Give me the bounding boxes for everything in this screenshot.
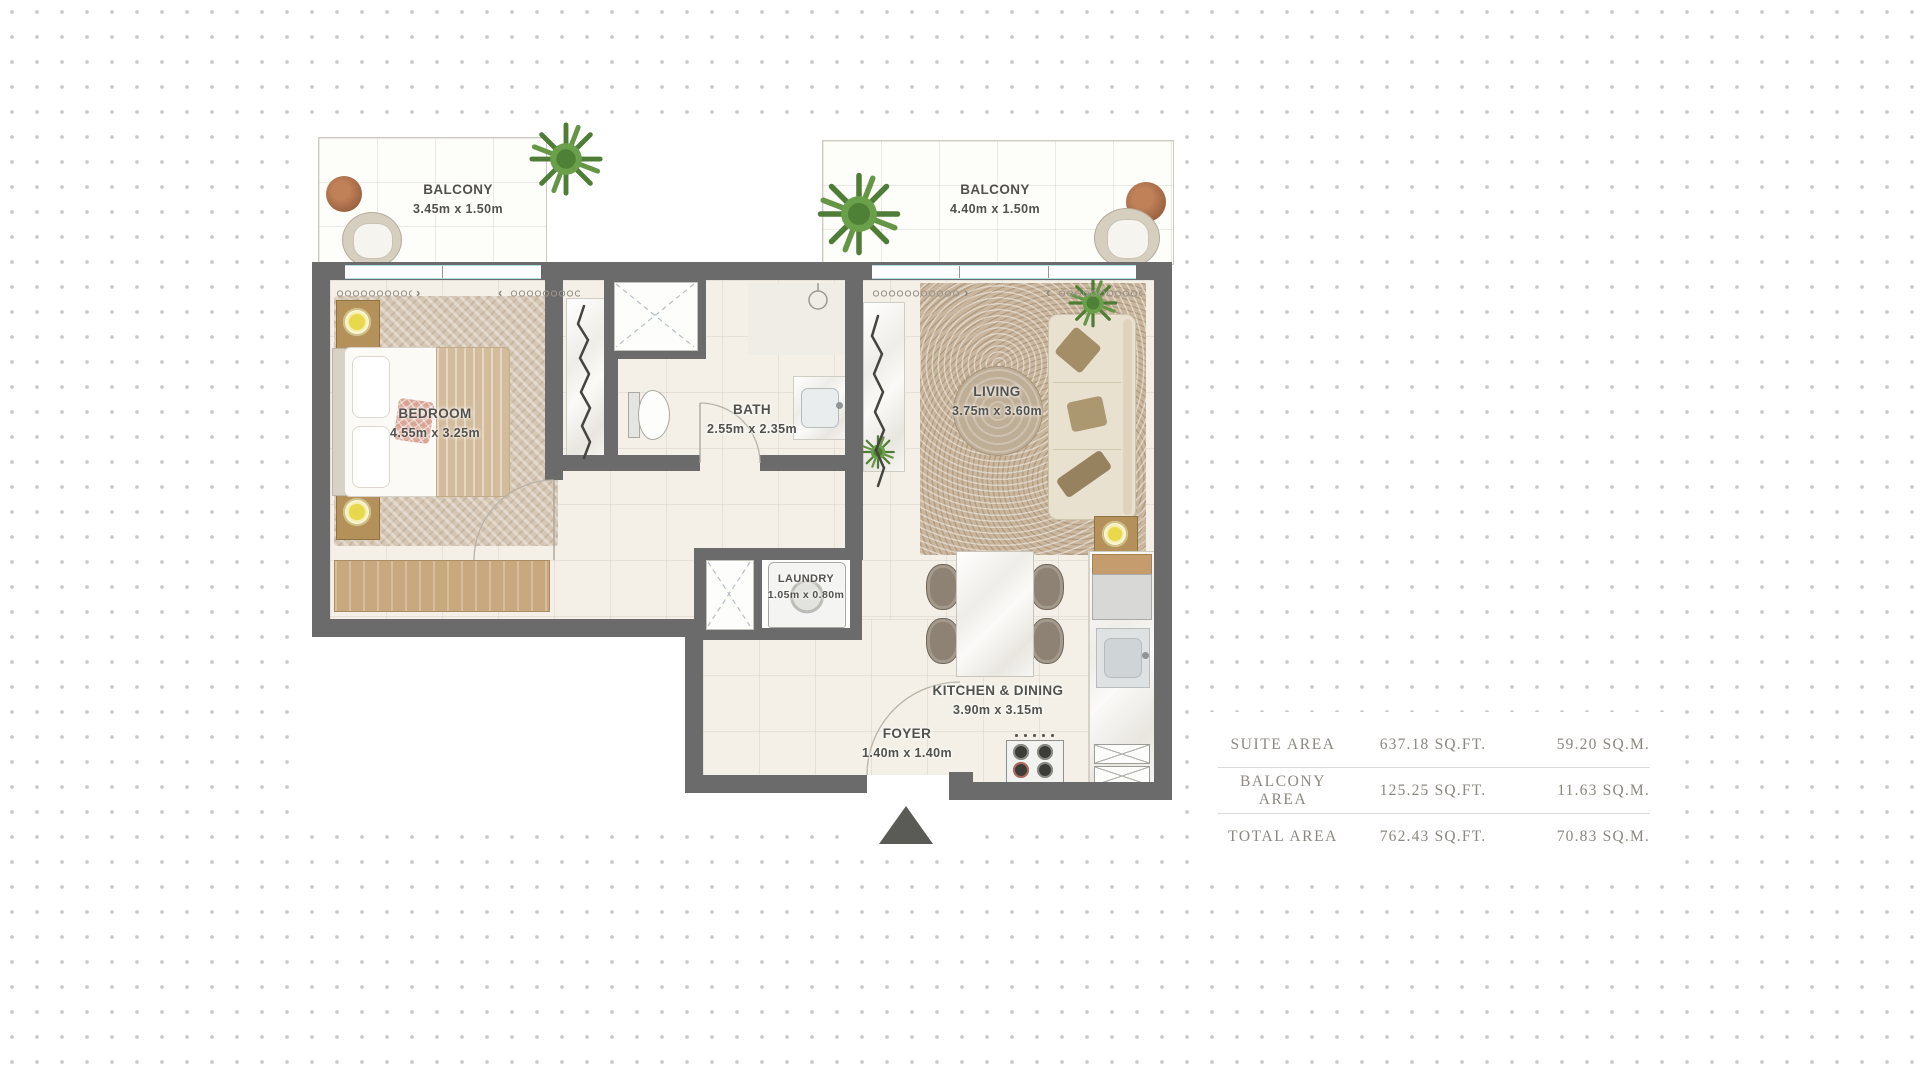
curtain-symbol [1058,289,1142,298]
shower-area [748,283,845,355]
stove-knobs [1012,733,1056,738]
dining-chair-icon [1030,618,1064,664]
room-dims: 4.40m x 1.50m [895,200,1095,218]
balcony-left-label: BALCONY 3.45m x 1.50m [358,180,558,218]
window [345,265,541,279]
room-name: BATH [652,400,852,420]
room-dims: 3.75m x 3.60m [897,402,1097,420]
floor-plan: › ‹ › ‹ B [0,0,1920,1078]
curtain-symbol [336,289,412,298]
wall [312,262,330,637]
curtain-symbol [872,289,960,298]
wall [685,775,867,793]
wardrobe [566,298,606,464]
wall [694,548,862,560]
room-name: KITCHEN & DINING [898,681,1098,701]
laundry-label: LAUNDRY 1.05m x 0.80m [736,572,876,603]
dining-chair-icon [926,564,960,610]
wall [685,619,703,793]
curtain-arrow: ‹ [1046,286,1050,299]
area-label: TOTAL AREA [1218,828,1348,846]
room-name: LAUNDRY [736,572,876,588]
dining-chair-icon [926,618,960,664]
shaft-duct [614,282,698,351]
area-summary-table: SUITE AREA 637.18 SQ.FT. 59.20 SQ.M. BAL… [1218,722,1650,859]
wall [694,548,706,640]
fridge-body [1092,574,1152,620]
faucet-icon [1142,652,1149,659]
dining-table [956,551,1034,677]
room-dims: 3.90m x 3.15m [898,701,1098,719]
table-row: SUITE AREA 637.18 SQ.FT. 59.20 SQ.M. [1218,722,1650,767]
area-sqm: 11.63 SQ.M. [1518,782,1650,800]
room-name: FOYER [807,724,1007,744]
area-sqft: 762.43 SQ.FT. [1348,828,1518,846]
wall [845,471,863,560]
area-label: SUITE AREA [1218,736,1348,754]
foyer-label: FOYER 1.40m x 1.40m [807,724,1007,762]
curtain-arrow: ‹ [498,286,502,299]
room-dims: 1.40m x 1.40m [807,744,1007,762]
wall [604,355,618,455]
room-dims: 3.45m x 1.50m [358,200,558,218]
wall [563,455,700,471]
table-row: BALCONY AREA 125.25 SQ.FT. 11.63 SQ.M. [1218,767,1650,813]
balcony-right-label: BALCONY 4.40m x 1.50m [895,180,1095,218]
bath-label: BATH 2.55m x 2.35m [652,400,852,438]
plant-icon [815,170,903,258]
wall [845,280,863,471]
area-sqft: 637.18 SQ.FT. [1348,736,1518,754]
bedroom-bench [334,560,550,612]
room-name: BALCONY [358,180,558,200]
area-sqm: 59.20 SQ.M. [1518,736,1650,754]
room-dims: 1.05m x 0.80m [736,588,876,603]
wall [312,619,703,637]
area-label: BALCONY AREA [1218,773,1348,809]
fridge-icon [1092,554,1152,576]
room-name: LIVING [897,382,1097,402]
stove-icon [1006,740,1064,784]
entrance-threshold [867,775,949,801]
curtain-symbol [510,289,580,298]
area-sqm: 70.83 SQ.M. [1518,828,1650,846]
bedroom-label: BEDROOM 4.55m x 3.25m [335,404,535,442]
curtain-arrow: › [964,286,968,299]
lamp-glow [349,314,365,330]
living-label: LIVING 3.75m x 3.60m [897,382,1097,420]
cabinet-icon [1094,744,1150,764]
dining-chair-icon [1030,564,1064,610]
lamp-glow [349,504,365,520]
sink-icon [1104,638,1142,678]
plant-icon [860,434,896,470]
entrance-arrow-icon [879,806,933,844]
area-sqft: 125.25 SQ.FT. [1348,782,1518,800]
kitchen-dining-label: KITCHEN & DINING 3.90m x 3.15m [898,681,1098,719]
table-row: TOTAL AREA 762.43 SQ.FT. 70.83 SQ.M. [1218,813,1650,859]
plant-icon [1067,277,1119,329]
floorplan-page: › ‹ › ‹ B [0,0,1920,1078]
side-table-icon [326,176,362,212]
room-dims: 2.55m x 2.35m [652,420,852,438]
window [872,265,1136,279]
wall [545,280,563,480]
balcony-chair-icon [342,212,402,268]
room-name: BEDROOM [335,404,535,424]
lamp-glow [1108,527,1122,541]
curtain-arrow: › [416,286,420,299]
wall [1154,262,1172,800]
room-dims: 4.55m x 3.25m [335,424,535,442]
wall [955,782,1172,800]
room-name: BALCONY [895,180,1095,200]
balcony-chair-icon [1094,208,1160,268]
